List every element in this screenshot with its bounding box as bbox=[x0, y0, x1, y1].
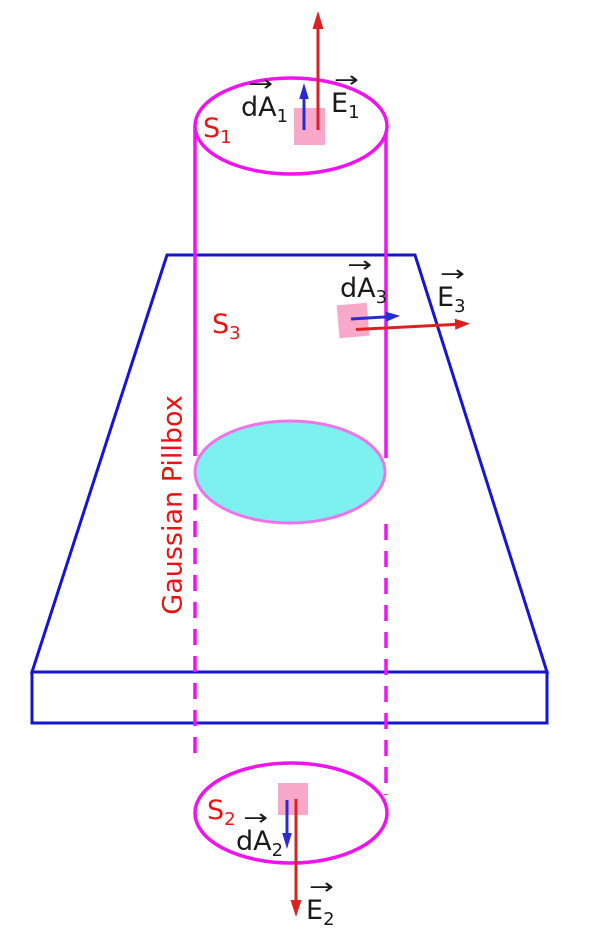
label-s2: S2 bbox=[207, 797, 236, 829]
diagram-shapes bbox=[0, 0, 600, 935]
vector-overbar-arrow-icon: → bbox=[440, 268, 470, 283]
label-s3-sub: 3 bbox=[229, 323, 240, 344]
label-s1: S1 bbox=[203, 115, 232, 147]
label-da1: →dA1 bbox=[241, 78, 288, 126]
label-e1-sub: 1 bbox=[348, 102, 359, 123]
area-patch-da3 bbox=[337, 303, 370, 338]
label-e2-sub: 2 bbox=[323, 909, 334, 930]
cylinder-slab-intersection-ellipse bbox=[195, 421, 385, 523]
label-da2-sub: 2 bbox=[272, 840, 283, 861]
label-da2: →dA2 bbox=[236, 812, 283, 860]
vector-overbar-arrow-icon: → bbox=[243, 812, 290, 827]
gaussian-pillbox-diagram: →dA1 →E1 S1 S3 →dA3 →E3 Gaussian Pillbox… bbox=[0, 0, 600, 935]
label-s2-sub: 2 bbox=[224, 809, 235, 830]
label-s3-base: S bbox=[212, 309, 229, 340]
vector-overbar-arrow-icon: → bbox=[347, 259, 394, 274]
label-s1-base: S bbox=[203, 113, 220, 144]
label-s1-sub: 1 bbox=[220, 127, 231, 148]
vector-overbar-arrow-icon: → bbox=[309, 881, 339, 896]
area-patch-da1 bbox=[294, 108, 325, 145]
label-da3: →dA3 bbox=[340, 259, 387, 307]
vector-overbar-arrow-icon: → bbox=[248, 78, 295, 93]
label-e2: →E2 bbox=[306, 881, 335, 929]
vector-overbar-arrow-icon: → bbox=[334, 74, 364, 89]
slab-front-face bbox=[32, 672, 547, 723]
area-patch-da2 bbox=[278, 783, 308, 815]
label-da1-sub: 1 bbox=[277, 106, 288, 127]
label-da3-sub: 3 bbox=[376, 287, 387, 308]
label-e1: →E1 bbox=[331, 74, 360, 122]
gaussian-pillbox-label: Gaussian Pillbox bbox=[160, 395, 187, 614]
label-e3: →E3 bbox=[437, 268, 466, 316]
label-e3-sub: 3 bbox=[454, 296, 465, 317]
label-s2-base: S bbox=[207, 795, 224, 826]
label-s3: S3 bbox=[212, 311, 241, 343]
e3-vector-arrow bbox=[356, 319, 470, 330]
